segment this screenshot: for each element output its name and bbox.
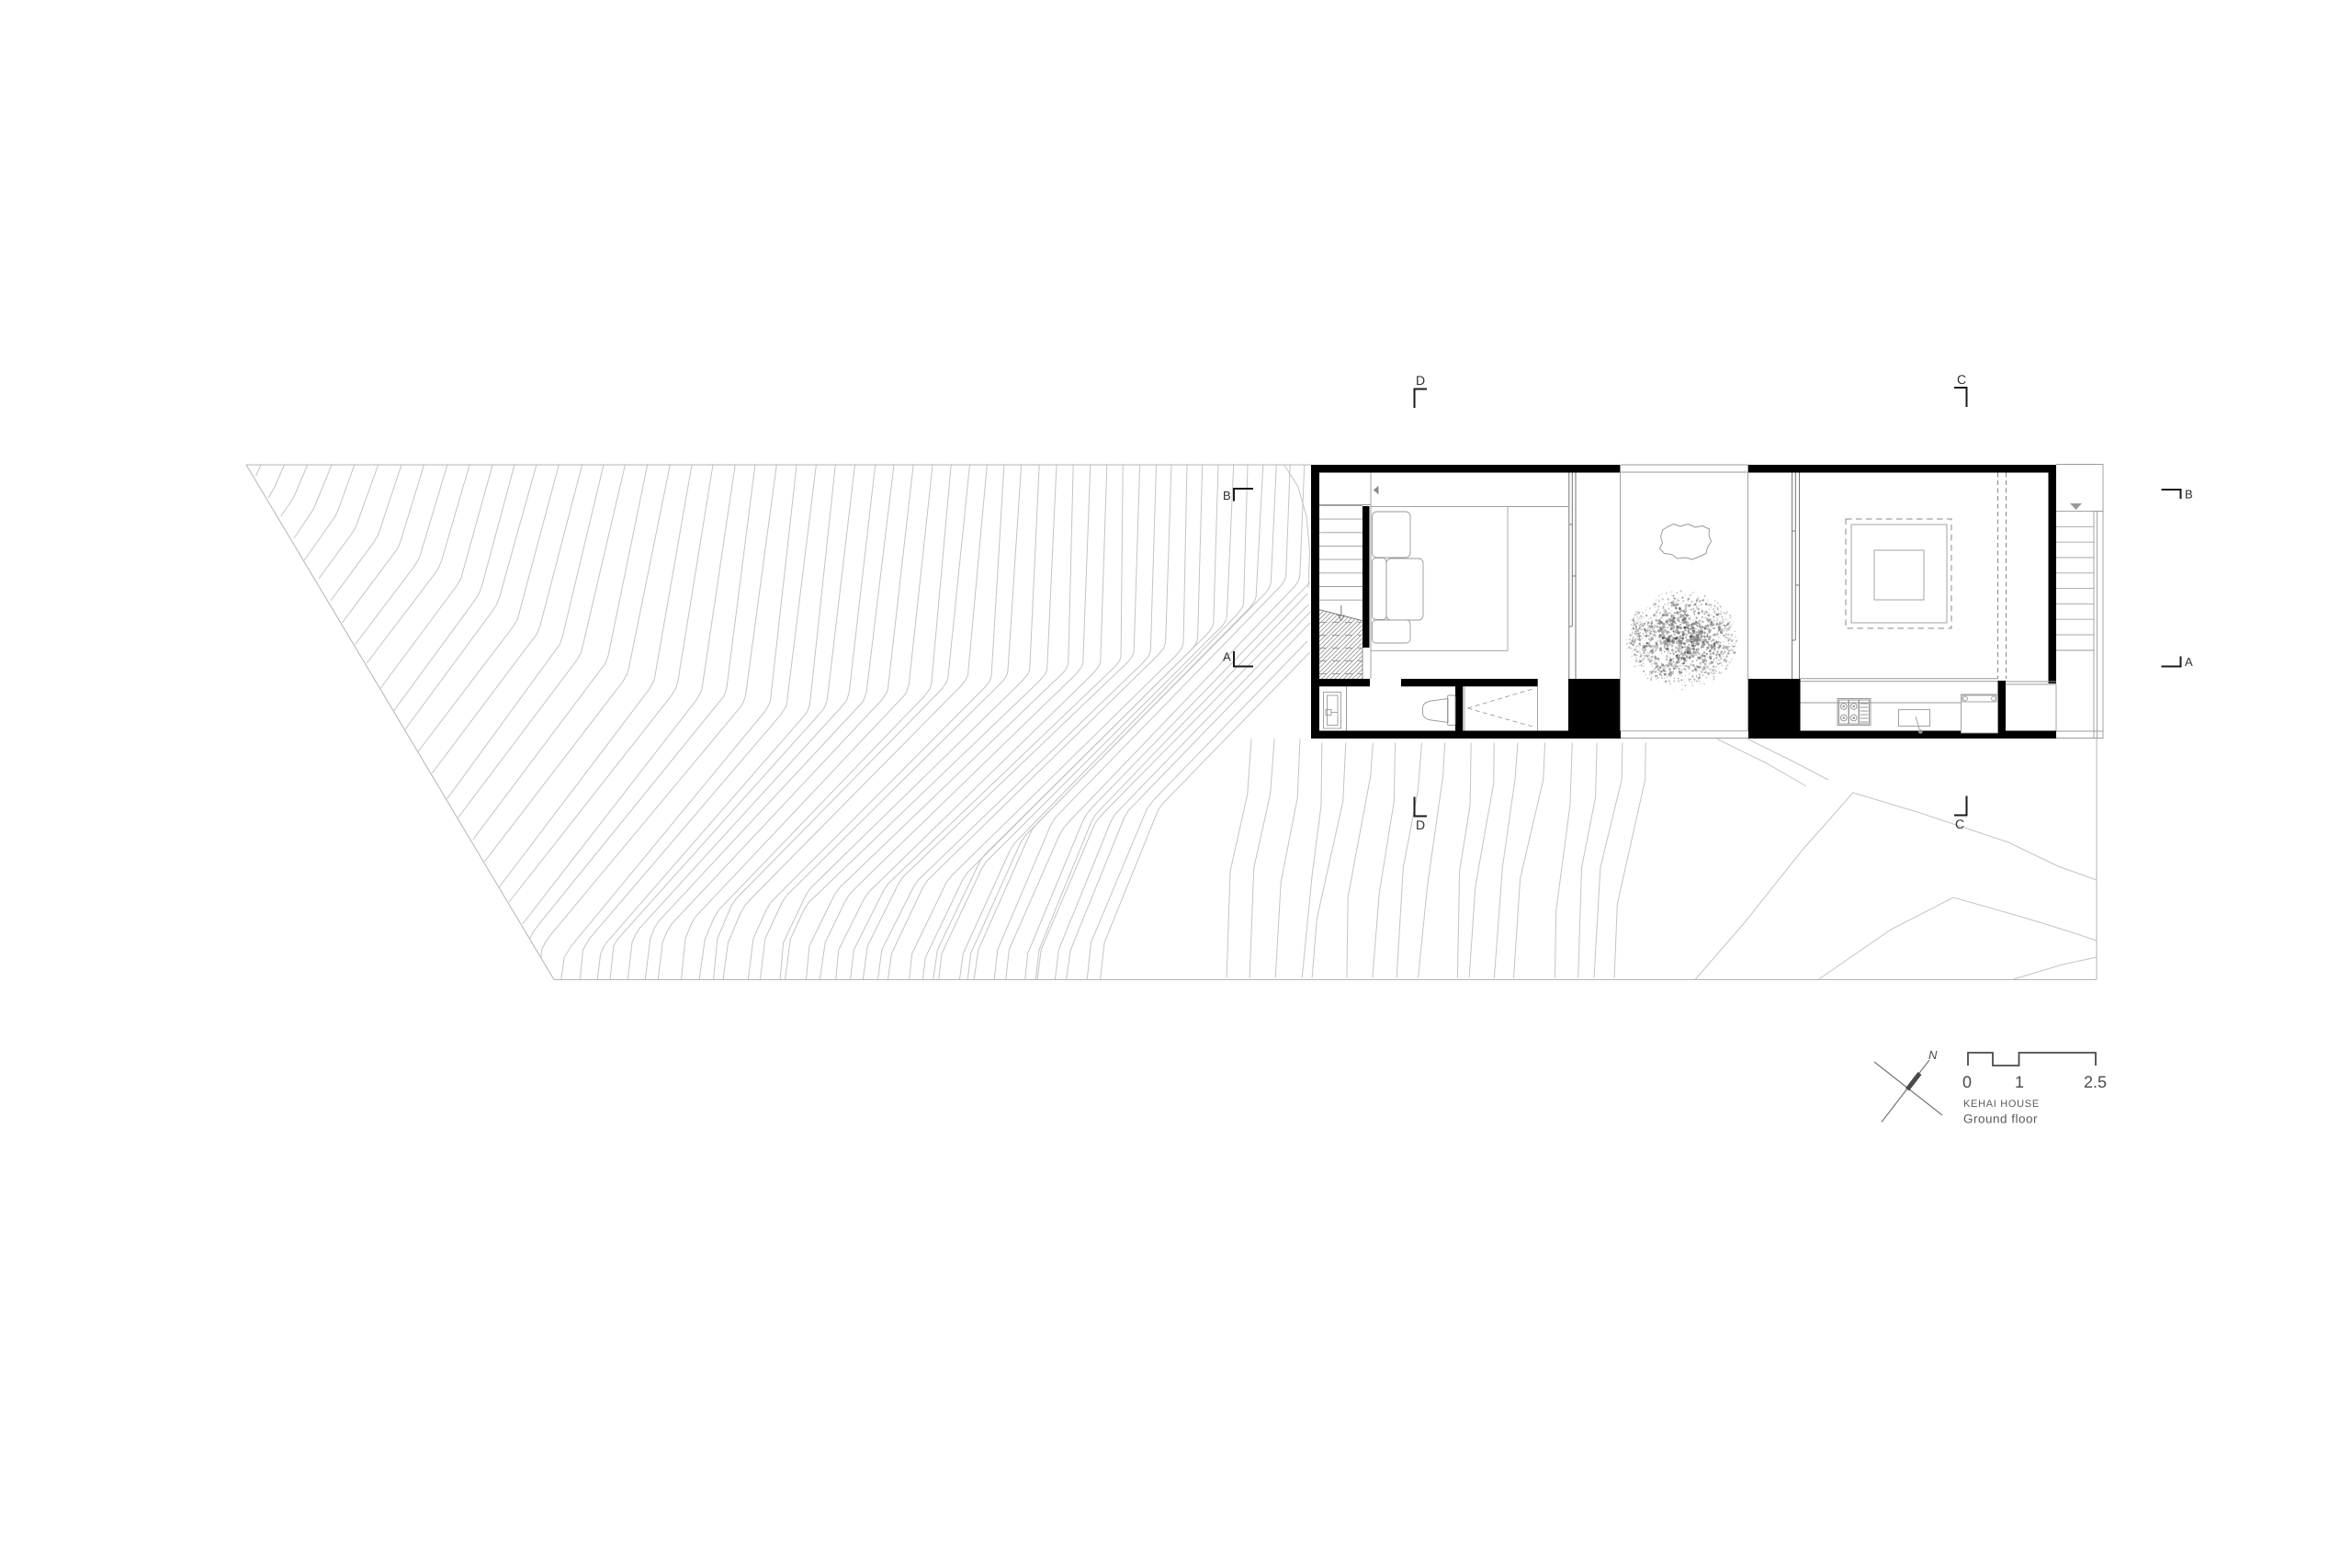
svg-text:B: B: [2185, 488, 2193, 502]
svg-text:D: D: [1416, 373, 1425, 388]
svg-text:C: C: [1955, 817, 1964, 831]
svg-text:C: C: [1957, 372, 1966, 387]
svg-text:2.5: 2.5: [2084, 1073, 2107, 1091]
svg-text:0: 0: [1962, 1073, 1972, 1091]
svg-text:N: N: [1928, 1048, 1938, 1062]
svg-text:A: A: [2185, 655, 2193, 669]
svg-text:KEHAI HOUSE: KEHAI HOUSE: [1963, 1099, 2040, 1110]
svg-text:A: A: [1223, 650, 1231, 664]
svg-text:Ground floor: Ground floor: [1963, 1112, 2038, 1126]
svg-text:B: B: [1223, 489, 1231, 502]
svg-text:D: D: [1416, 818, 1425, 832]
svg-text:1: 1: [2015, 1073, 2024, 1091]
